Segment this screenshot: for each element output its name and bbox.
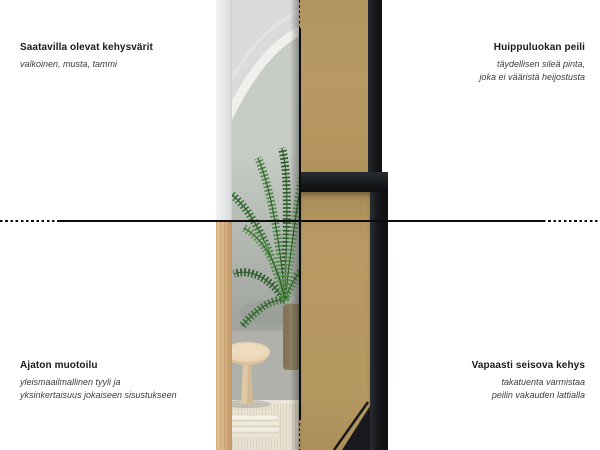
mirror-back (300, 0, 390, 450)
dotted-line-vertical-top (299, 0, 301, 30)
annotation-timeless-design: Ajaton muotoilu yleismaailmallinen tyyli… (20, 360, 177, 402)
annotation-subtitle: yleismaailmallinen tyyli ja yksinkertais… (20, 376, 177, 402)
black-frame-strip-bottom (370, 192, 388, 450)
mirror-glass-reflection (232, 0, 300, 450)
annotation-subtitle-line1: yleismaailmallinen tyyli ja (20, 376, 177, 389)
annotation-subtitle: takatuenta varmistaa peilin vakauden lat… (472, 376, 585, 402)
annotation-subtitle: täydellisen sileä pinta, joka ei väärist… (479, 58, 585, 84)
annotation-title: Vapaasti seisova kehys (472, 360, 585, 371)
annotation-frame-colors: Saatavilla olevat kehysvärit valkoinen, … (20, 42, 153, 71)
annotation-subtitle-line2: joka ei vääristä heijostusta (479, 71, 585, 84)
annotation-title: Saatavilla olevat kehysvärit (20, 42, 153, 53)
mirror-frame-oak (216, 221, 233, 450)
annotation-premium-mirror: Huippuluokan peili täydellisen sileä pin… (479, 42, 585, 84)
mdf-board-bottom (300, 192, 370, 450)
annotation-subtitle-line2: yksinkertaisuus jokaiseen sisustukseen (20, 389, 177, 402)
annotation-subtitle-line1: täydellisen sileä pinta, (479, 58, 585, 71)
mirror-frame (216, 0, 232, 450)
dotted-line-horizontal-left (0, 220, 58, 222)
dotted-line-horizontal-right (543, 220, 600, 222)
annotation-freestanding-frame: Vapaasti seisova kehys takatuenta varmis… (472, 360, 585, 402)
product-photo (216, 0, 390, 450)
stand-leg-graphic (300, 192, 370, 450)
plant-pot-shade (283, 304, 289, 370)
black-frame-strip-top (368, 0, 382, 172)
annotation-subtitle-line1: takatuenta varmistaa (472, 376, 585, 389)
annotation-title: Ajaton muotoilu (20, 360, 177, 371)
solid-line-horizontal (58, 220, 543, 222)
annotation-subtitle: valkoinen, musta, tammi (20, 58, 153, 71)
front-back-split-line (299, 28, 301, 420)
black-support-bar (300, 172, 388, 192)
infographic-canvas: Saatavilla olevat kehysvärit valkoinen, … (0, 0, 600, 450)
stand-leg (342, 406, 370, 450)
annotation-subtitle-line2: peilin vakauden lattialla (472, 389, 585, 402)
reflection-scene (232, 0, 300, 450)
mdf-board-top (300, 0, 368, 172)
mirror-frame-white (216, 0, 233, 221)
annotation-title: Huippuluokan peili (479, 42, 585, 53)
dotted-line-vertical-bottom (299, 418, 301, 450)
